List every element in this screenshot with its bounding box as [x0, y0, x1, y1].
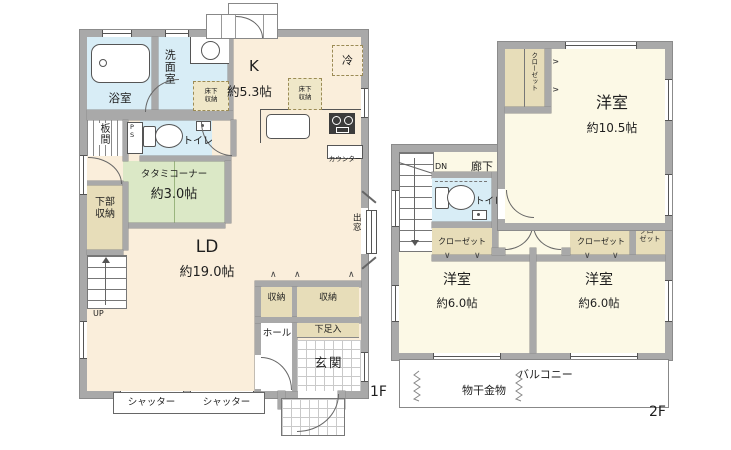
storage-label: 収納 — [297, 293, 359, 304]
window — [392, 190, 399, 227]
washroom-label: 洗面室 — [163, 49, 176, 85]
window — [102, 30, 132, 37]
closet-label: クローゼット — [529, 52, 537, 91]
underfloor-storage-box: 床下収納 — [193, 81, 229, 111]
bathtub — [91, 44, 150, 83]
window — [665, 174, 672, 216]
bath-label: 浴室 — [91, 92, 149, 106]
stairs-up — [87, 255, 127, 309]
toilet-shelf — [435, 181, 487, 182]
underfloor-storage-box: 床下収納 — [288, 78, 322, 110]
balcony: バルコニー 物干金物 — [399, 359, 669, 408]
kitchen-label: K — [249, 57, 259, 75]
stairs-arrow-line — [414, 158, 415, 240]
shutter-label: シャッター — [128, 397, 176, 408]
pipe-space-label: PS — [130, 124, 138, 140]
laundry-hardware-label: 物干金物 — [462, 384, 506, 397]
toilet-label: トイレ — [183, 136, 213, 148]
door-open-mark: ∧ — [550, 58, 559, 65]
basin-bowl — [201, 41, 220, 60]
door-open-mark: ∨ — [584, 252, 591, 261]
closet-label: クローゼット — [570, 237, 632, 247]
kitchen-sink — [266, 114, 310, 139]
washlet-dot — [477, 213, 480, 216]
door-open-mark: ∧ — [294, 271, 301, 280]
living-label: LD — [167, 237, 247, 257]
stairs-arrow-head — [102, 257, 110, 263]
closet — [505, 49, 545, 107]
bay-window-label: 出窓 — [351, 213, 361, 232]
living-size-label: 約19.0帖 — [162, 265, 252, 281]
fridge-space: 冷 — [332, 45, 363, 76]
laundry-hook-icon — [514, 370, 524, 402]
floorplan: カウンター PS 床下収納 床下収納 冷 — [0, 0, 731, 450]
wall — [140, 156, 231, 161]
bathtub-drain — [99, 59, 107, 67]
kitchen-size-label: 約5.3帖 — [227, 84, 272, 99]
tatami-corner-label: タタミコーナー — [123, 169, 225, 180]
room-size-label: 約10.5帖 — [562, 121, 662, 135]
pipe-space: PS — [127, 122, 143, 154]
storage-label: 収納 — [261, 293, 292, 304]
room-label: 洋室 — [562, 93, 662, 112]
hall-label: ホール — [257, 328, 297, 339]
wash-basin — [190, 37, 229, 64]
porch-divider — [263, 15, 264, 38]
entrance-label: 玄関 — [297, 355, 361, 370]
counter-label-box: カウンター — [327, 145, 363, 159]
down-label: DN — [435, 162, 447, 172]
floorplan-1f: カウンター PS 床下収納 床下収納 冷 — [80, 30, 368, 398]
door-gap — [498, 189, 505, 219]
wall — [492, 248, 505, 255]
window — [361, 88, 368, 118]
floor2-label: 2F — [649, 404, 666, 421]
stairs-arrow-line — [105, 263, 106, 305]
window — [361, 352, 368, 382]
toilet-bowl — [155, 124, 183, 148]
wall — [562, 248, 570, 255]
stove — [329, 113, 355, 134]
up-label: UP — [93, 309, 104, 319]
door-open-mark: ∧ — [348, 271, 355, 280]
corridor-label: 廊下 — [471, 160, 493, 173]
toilet-bowl — [447, 185, 475, 210]
closet-divider — [524, 49, 525, 107]
back-porch — [206, 14, 278, 39]
window — [80, 321, 87, 359]
door-open-mark: ∧ — [270, 271, 277, 280]
wall — [123, 223, 225, 228]
shutter-label: シャッター — [203, 397, 251, 408]
washlet-panel — [472, 210, 487, 220]
window — [565, 42, 637, 49]
back-door-arc — [236, 16, 263, 38]
floor1-label: 1F — [370, 384, 387, 401]
door-open-mark: ∨ — [474, 252, 481, 261]
window — [80, 155, 87, 195]
window — [392, 285, 399, 322]
window — [665, 280, 672, 322]
closet-label: クローゼット — [432, 237, 492, 247]
door-arc — [88, 157, 122, 184]
underfloor-storage-label: 床下収納 — [298, 86, 313, 102]
room-size-label: 約6.0帖 — [559, 297, 639, 311]
window — [665, 79, 672, 121]
fridge-label: 冷 — [342, 54, 353, 67]
door-open-mark: ∧ — [550, 86, 559, 93]
porch-divider — [221, 15, 222, 38]
floorplan-2f-upper: クローゼット ∧ ∧ 洋室 約10.5帖 — [498, 42, 672, 230]
balcony-label: バルコニー — [518, 368, 573, 381]
wall — [505, 107, 551, 113]
lower-storage-label: 下部収納 — [94, 197, 116, 221]
burner — [344, 116, 353, 125]
wall — [225, 161, 231, 223]
door-arc — [506, 190, 534, 218]
underfloor-storage-label: 床下収納 — [204, 88, 219, 104]
shoe-cabinet-label: 下足入 — [297, 325, 359, 336]
stairs-arrow-head — [411, 240, 419, 246]
room-label: 洋室 — [417, 272, 497, 289]
door-open-mark: ∨ — [444, 252, 451, 261]
bay-window — [366, 210, 377, 254]
burner — [332, 116, 341, 125]
room-size-label: 約6.0帖 — [417, 297, 497, 311]
window — [165, 30, 189, 37]
grill — [336, 127, 349, 133]
laundry-hook-icon — [412, 370, 422, 402]
wall — [432, 255, 665, 261]
room-label: 洋室 — [559, 272, 639, 289]
tatami-size-label: 約3.0帖 — [123, 187, 225, 203]
counter-label: カウンター — [329, 155, 362, 163]
shutter-box: シャッター シャッター — [113, 392, 265, 414]
wall — [530, 248, 536, 353]
itama-label: 板間 — [97, 123, 109, 145]
door-open-mark: ∨ — [612, 252, 619, 261]
